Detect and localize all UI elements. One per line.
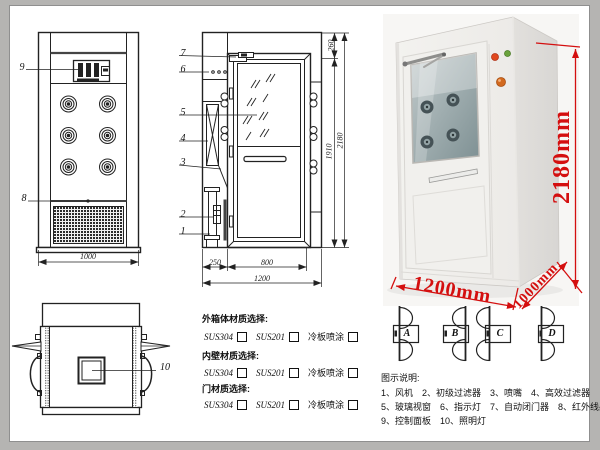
part-label-9: 9 xyxy=(16,62,28,73)
legend-line-2: 5、玻璃视窗 6、指示灯 7、自动闭门器 8、红外线感应器 xyxy=(381,400,600,413)
side-view-drawing xyxy=(179,33,349,288)
material-option-label: SUS304 xyxy=(204,368,233,378)
material-option-label: SUS304 xyxy=(204,332,233,342)
material-option: 冷板喷涂 xyxy=(308,398,358,411)
door-option-label-a: A xyxy=(401,328,413,339)
material-checkbox[interactable] xyxy=(348,368,358,378)
front-width-dim: 1000 xyxy=(68,252,108,261)
legend-item: 3、喷嘴 xyxy=(490,386,522,399)
material-option: SUS304 xyxy=(204,368,247,378)
legend-item: 7、自动闭门器 xyxy=(490,400,549,413)
dim-2180: 2180 xyxy=(336,129,345,153)
material-row-outer: SUS304 SUS201 冷板喷涂 xyxy=(204,330,358,343)
door-option-label-b: B xyxy=(449,328,461,339)
material-option: 冷板喷涂 xyxy=(308,366,358,379)
material-option-label: 冷板喷涂 xyxy=(308,398,344,411)
material-option: SUS304 xyxy=(204,400,247,410)
material-checkbox[interactable] xyxy=(289,400,299,410)
part-label-2: 2 xyxy=(176,209,190,220)
material-option: SUS201 xyxy=(256,400,299,410)
material-option: SUS304 xyxy=(204,332,247,342)
legend-item: 2、初级过滤器 xyxy=(422,386,481,399)
photo-height-dim: 2180mm xyxy=(550,116,574,204)
material-option-label: SUS201 xyxy=(256,400,285,410)
left-door-hardware xyxy=(12,335,42,396)
front-view-drawing xyxy=(26,33,141,267)
legend-item: 4、高效过滤器 xyxy=(531,386,590,399)
material-checkbox[interactable] xyxy=(289,332,299,342)
material-group-title-inner: 内壁材质选择: xyxy=(202,349,259,362)
part-label-8: 8 xyxy=(18,193,30,204)
dim-800: 800 xyxy=(252,258,282,267)
material-option-label: 冷板喷涂 xyxy=(308,330,344,343)
dim-250: 250 xyxy=(200,258,230,267)
line-art xyxy=(0,0,600,450)
material-row-inner: SUS304 SUS201 冷板喷涂 xyxy=(204,366,358,379)
material-checkbox[interactable] xyxy=(289,368,299,378)
material-option: SUS201 xyxy=(256,368,299,378)
air-shower-spec-sheet: 9 8 1000 7 6 5 4 3 2 1 260 1910 2180 250… xyxy=(0,0,600,450)
material-option-label: 冷板喷涂 xyxy=(308,366,344,379)
legend-title: 图示说明: xyxy=(381,371,420,384)
part-label-3: 3 xyxy=(176,157,190,168)
part-label-1: 1 xyxy=(176,226,190,237)
material-option: 冷板喷涂 xyxy=(308,330,358,343)
part-label-4: 4 xyxy=(176,133,190,144)
door-swing-icons xyxy=(394,306,564,361)
hinge xyxy=(230,88,234,99)
legend-item: 5、玻璃视窗 xyxy=(381,400,431,413)
material-checkbox[interactable] xyxy=(348,400,358,410)
material-checkbox[interactable] xyxy=(237,332,247,342)
dim-1200: 1200 xyxy=(242,274,282,283)
dim-1910: 1910 xyxy=(325,140,334,164)
legend-line-3: 9、控制面板 10、照明灯 xyxy=(381,414,486,427)
legend-item: 9、控制面板 xyxy=(381,414,431,427)
hinge xyxy=(230,216,234,227)
top-view-drawing xyxy=(12,304,170,415)
air-return-grille xyxy=(54,207,124,244)
legend-item: 1、风机 xyxy=(381,386,413,399)
door-option-label-c: C xyxy=(494,328,506,339)
part-label-6: 6 xyxy=(176,64,190,75)
legend-item: 8、红外线感应器 xyxy=(558,400,600,413)
material-group-title-door: 门材质选择: xyxy=(202,382,250,395)
material-option: SUS201 xyxy=(256,332,299,342)
material-checkbox[interactable] xyxy=(348,332,358,342)
material-checkbox[interactable] xyxy=(237,400,247,410)
material-option-label: SUS304 xyxy=(204,400,233,410)
part-label-5: 5 xyxy=(176,107,190,118)
part-label-7: 7 xyxy=(176,48,190,59)
legend-item: 6、指示灯 xyxy=(440,400,481,413)
material-option-label: SUS201 xyxy=(256,368,285,378)
material-row-door: SUS304 SUS201 冷板喷涂 xyxy=(204,398,358,411)
hinge xyxy=(230,146,234,157)
part-label-10: 10 xyxy=(157,362,173,373)
legend-item: 10、照明灯 xyxy=(440,414,486,427)
material-checkbox[interactable] xyxy=(237,368,247,378)
material-option-label: SUS201 xyxy=(256,332,285,342)
dim-260: 260 xyxy=(327,37,336,55)
material-group-title-outer: 外箱体材质选择: xyxy=(202,312,268,325)
legend-line-1: 1、风机 2、初级过滤器 3、喷嘴 4、高效过滤器 xyxy=(381,386,590,399)
door-option-label-d: D xyxy=(546,328,558,339)
